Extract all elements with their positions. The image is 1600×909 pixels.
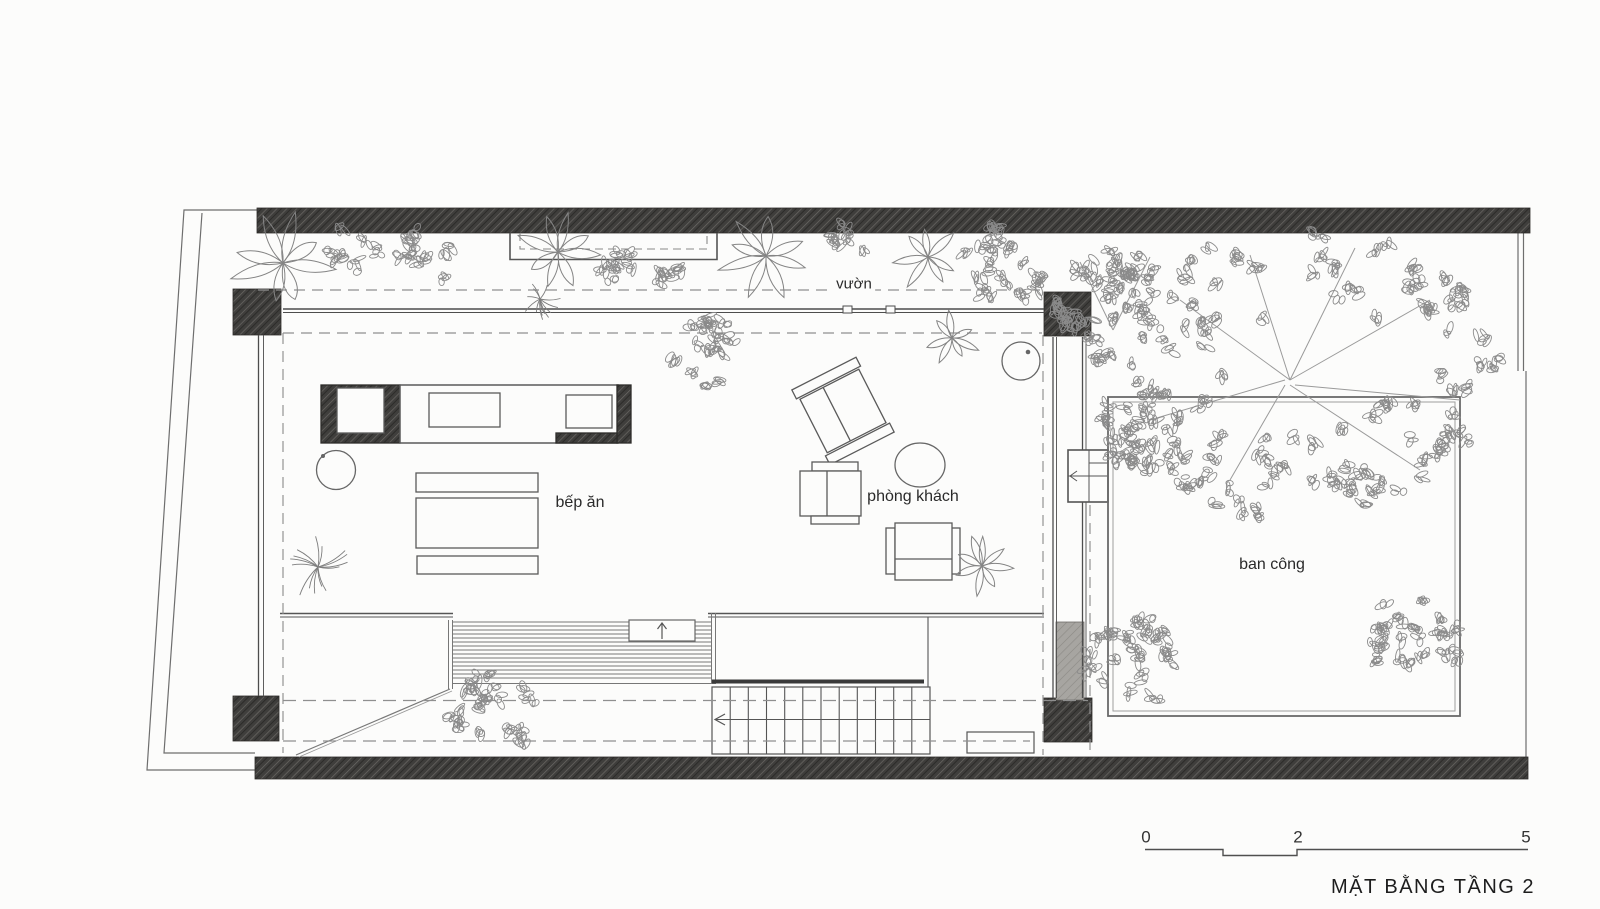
scale-bar [1145, 850, 1528, 856]
wall-gray-segment [1056, 622, 1084, 700]
scale-tick-2: 2 [1290, 829, 1305, 846]
balcony-door-unit [1068, 450, 1108, 502]
armchair [800, 462, 861, 524]
armchair [886, 523, 960, 580]
wall-top [257, 208, 1530, 233]
bench [967, 732, 1034, 753]
living-furniture [792, 342, 1040, 580]
stairs [712, 682, 930, 755]
plan-title: MẶT BẰNG TẦNG 2 [1331, 876, 1535, 899]
scale-tick-5: 5 [1518, 829, 1533, 846]
armchair-rotated [792, 357, 894, 465]
room-label-living-room: phòng khách [864, 489, 962, 505]
dashed-lines [258, 290, 1090, 755]
column-top-left [233, 289, 281, 335]
room-label-garden: vườn [833, 277, 875, 292]
wall-bottom [255, 757, 1528, 779]
louver-band [449, 613, 716, 689]
column-bottom-left [233, 696, 279, 741]
dining-bench [417, 556, 538, 574]
planter-pot [1002, 342, 1040, 380]
floor-plan-sheet: vườn bếp ăn phòng khách ban công 0 2 5 M… [0, 0, 1600, 909]
floor-plan-drawing [0, 0, 1600, 909]
room-label-dining-kitchen: bếp ăn [553, 495, 608, 511]
dining-bench [416, 473, 538, 492]
kitchen-furniture [317, 385, 632, 574]
kitchen-sink [337, 388, 384, 433]
column-bottom-right [1044, 698, 1092, 742]
scale-tick-0: 0 [1138, 829, 1153, 846]
room-label-balcony: ban công [1236, 557, 1308, 573]
dining-table [416, 498, 538, 548]
coffee-table [895, 443, 945, 487]
